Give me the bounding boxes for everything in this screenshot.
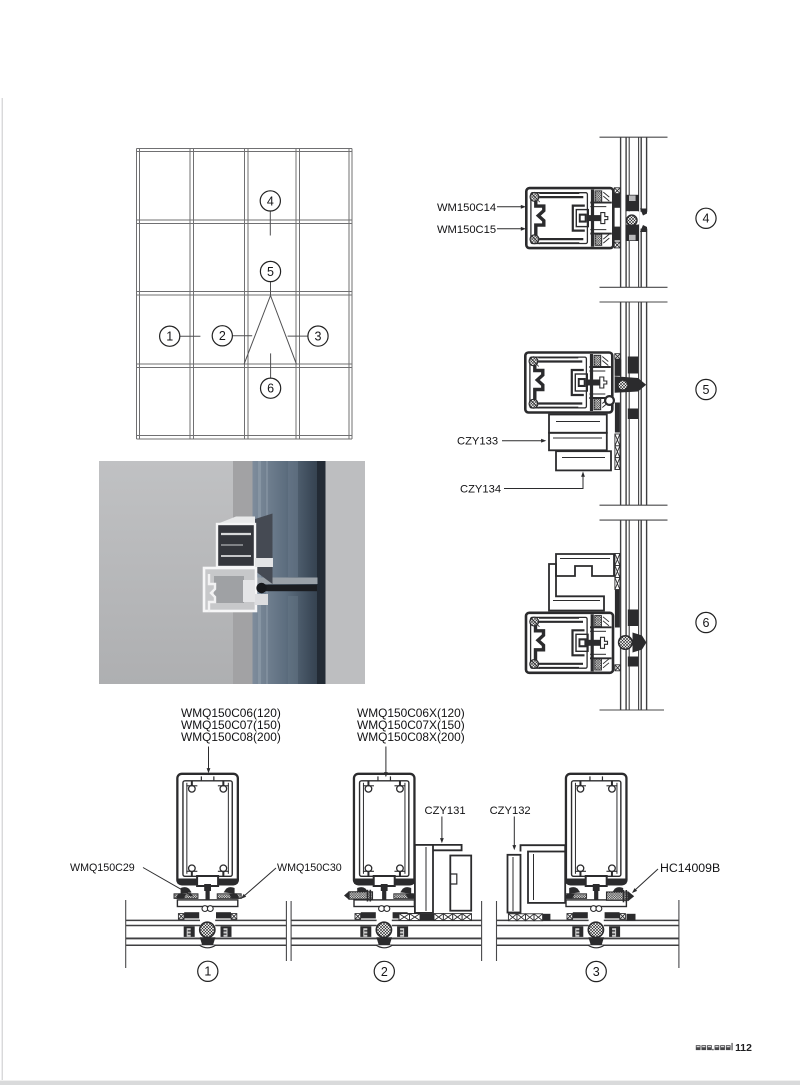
svg-text:WMQ150C08(200): WMQ150C08(200) xyxy=(181,730,281,744)
svg-text:1: 1 xyxy=(166,330,173,344)
svg-text:4: 4 xyxy=(703,212,710,226)
svg-text:WMQ150C29: WMQ150C29 xyxy=(70,862,135,874)
svg-text:3: 3 xyxy=(593,965,600,979)
svg-text:4: 4 xyxy=(267,194,274,208)
svg-text:HC14009B: HC14009B xyxy=(660,861,720,875)
svg-text:5: 5 xyxy=(267,265,274,279)
svg-text:WMQ150C30: WMQ150C30 xyxy=(277,862,342,874)
svg-text:CZY133: CZY133 xyxy=(457,435,498,447)
svg-text:6: 6 xyxy=(267,382,274,396)
svg-text:112: 112 xyxy=(735,1043,752,1054)
svg-text:6: 6 xyxy=(703,616,710,630)
svg-text:CZY134: CZY134 xyxy=(460,483,501,495)
svg-text:2: 2 xyxy=(381,965,388,979)
svg-text:CZY132: CZY132 xyxy=(490,805,531,817)
svg-text:WM150C14: WM150C14 xyxy=(437,202,496,214)
svg-text:3: 3 xyxy=(315,330,322,344)
svg-text:2: 2 xyxy=(219,329,226,343)
svg-text:WM150C15: WM150C15 xyxy=(437,224,496,236)
svg-text:5: 5 xyxy=(703,383,710,397)
svg-text:CZY131: CZY131 xyxy=(425,805,466,817)
svg-text:1: 1 xyxy=(204,965,211,979)
svg-text:WMQ150C08X(200): WMQ150C08X(200) xyxy=(357,730,465,744)
